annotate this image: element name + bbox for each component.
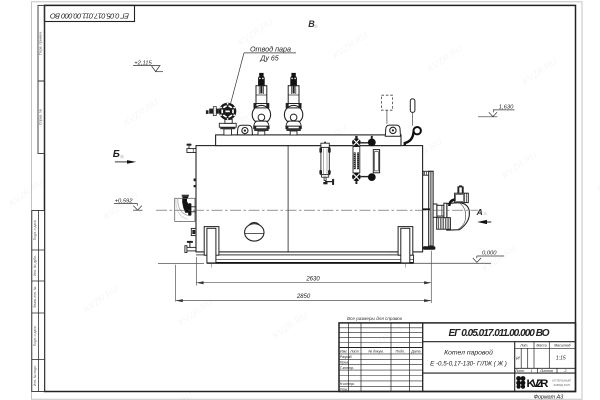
svg-text:Справ. №: Справ. № bbox=[39, 109, 43, 125]
svg-text:Листов: Листов bbox=[539, 369, 553, 373]
svg-text:Все размеры для справок: Все размеры для справок bbox=[347, 316, 403, 321]
svg-text:2850: 2850 bbox=[296, 294, 311, 300]
svg-text:№ докум.: № докум. bbox=[368, 349, 383, 353]
svg-text:Пров.: Пров. bbox=[340, 360, 349, 364]
svg-text:Лист: Лист bbox=[349, 349, 359, 353]
svg-text:2630: 2630 bbox=[305, 276, 320, 282]
svg-text:Формат А3: Формат А3 bbox=[534, 395, 564, 400]
svg-text:Отвод пара: Отвод пара bbox=[250, 45, 291, 54]
svg-text:Утв.: Утв. bbox=[340, 387, 348, 391]
svg-text:1,630: 1,630 bbox=[499, 105, 514, 111]
svg-text:Котел паровой: Котел паровой bbox=[444, 349, 493, 357]
svg-text:+0,592: +0,592 bbox=[115, 198, 134, 204]
svg-text:Подп. и дата: Подп. и дата bbox=[33, 326, 37, 346]
svg-text:ЕГ 0.05.017.011.00.000 ВО: ЕГ 0.05.017.011.00.000 ВО bbox=[449, 328, 550, 339]
svg-text:Н.контр.: Н.контр. bbox=[340, 382, 355, 386]
svg-text:Дата: Дата bbox=[410, 349, 420, 353]
svg-text:ЕГ 0.05.017.011.00.000 ВО: ЕГ 0.05.017.011.00.000 ВО bbox=[50, 12, 129, 21]
svg-text:Лит.: Лит. bbox=[519, 344, 528, 348]
svg-text:Ду 65: Ду 65 bbox=[259, 56, 278, 63]
svg-text:Т.контр.: Т.контр. bbox=[340, 366, 354, 370]
svg-text:Масса: Масса bbox=[536, 344, 546, 348]
svg-text:Взам. инв. №: Взам. инв. № bbox=[33, 286, 37, 307]
svg-text:Лист: Лист bbox=[514, 369, 524, 373]
svg-text:Перв. примен.: Перв. примен. bbox=[39, 31, 43, 55]
svg-text:Подп. и дата: Подп. и дата bbox=[33, 220, 37, 240]
svg-text:Инв. № дубл.: Инв. № дубл. bbox=[33, 255, 37, 276]
svg-text:0,000: 0,000 bbox=[482, 251, 497, 257]
svg-text:+2,115: +2,115 bbox=[134, 60, 152, 66]
svg-text:Инв. № подл.: Инв. № подл. bbox=[33, 365, 37, 386]
svg-text:А: А bbox=[476, 207, 483, 217]
svg-text:Разраб.: Разраб. bbox=[340, 355, 353, 359]
svg-text:Подп.: Подп. bbox=[396, 349, 405, 353]
svg-text:1: 1 bbox=[531, 369, 533, 373]
svg-text:Е -0,5-0,17-130- Г/ЛЖ ( Ж ): Е -0,5-0,17-130- Г/ЛЖ ( Ж ) bbox=[430, 360, 507, 367]
svg-text:KVZR.RU: KVZR.RU bbox=[595, 162, 600, 193]
svg-text:KVZR: KVZR bbox=[527, 378, 549, 390]
svg-text:ЗАВОД РЭП: ЗАВОД РЭП bbox=[553, 383, 570, 387]
svg-text:2: 2 bbox=[564, 369, 567, 373]
svg-text:1:15: 1:15 bbox=[556, 355, 566, 361]
svg-text:И: И bbox=[516, 355, 520, 361]
svg-text:Изм.: Изм. bbox=[340, 349, 347, 353]
svg-text:Б: Б bbox=[113, 149, 120, 160]
svg-text:Масштаб: Масштаб bbox=[554, 344, 571, 348]
